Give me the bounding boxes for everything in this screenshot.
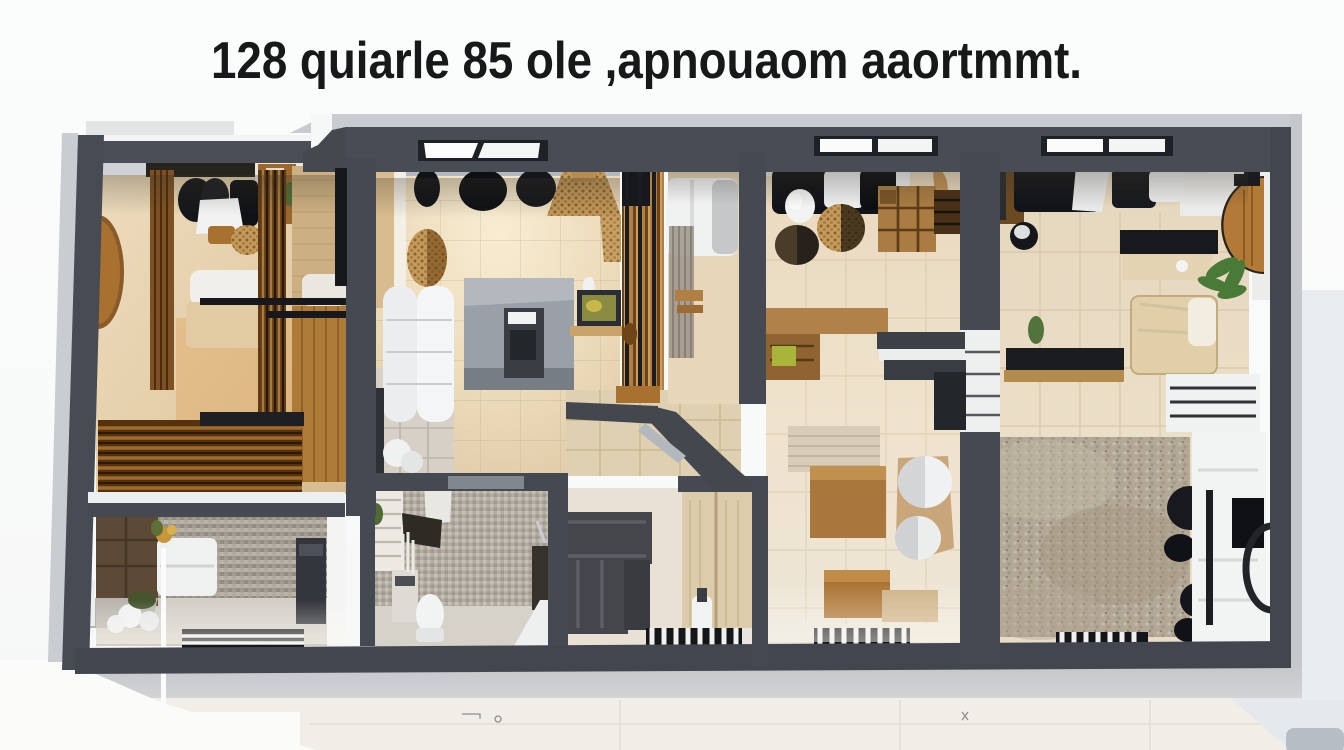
svg-text:128 quiarle 85 ole ,apnouaom: 128 quiarle 85 ole ,apnouaom aaortmmt. <box>211 32 1082 90</box>
